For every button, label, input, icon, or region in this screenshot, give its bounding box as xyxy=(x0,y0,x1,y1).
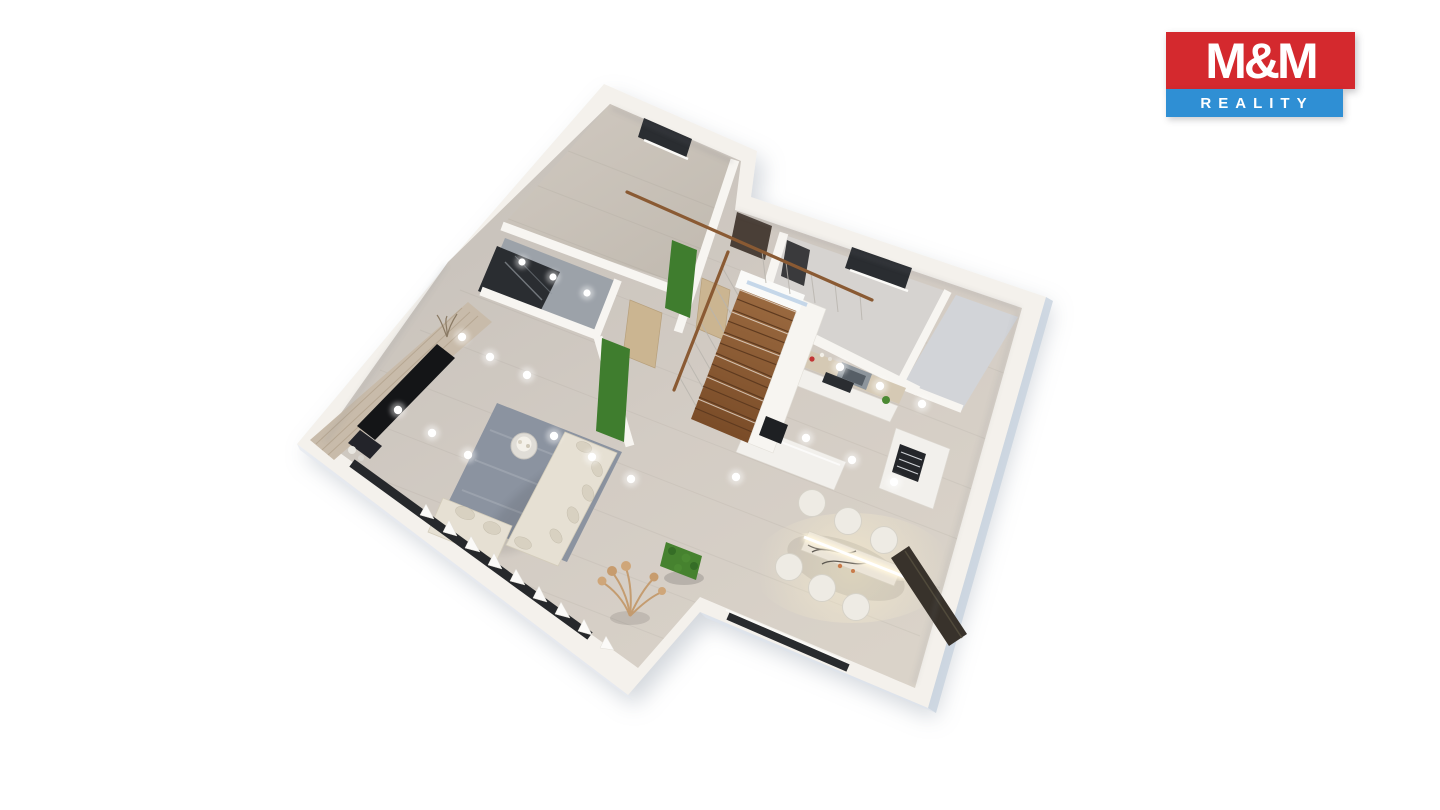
pampas-plume xyxy=(650,573,659,582)
logo-title: M&M xyxy=(1205,32,1315,90)
logo-reality-bar: REALITY xyxy=(1166,89,1343,117)
table-decor xyxy=(838,564,842,568)
kitchen-plant xyxy=(882,396,890,404)
vase xyxy=(358,455,364,461)
red-pot xyxy=(809,356,814,361)
coffee-table-flowers xyxy=(517,437,532,452)
hedge-texture xyxy=(682,554,691,563)
kitchen-item xyxy=(828,357,832,361)
logo-subtitle: REALITY xyxy=(1200,95,1313,112)
pampas-plume xyxy=(621,561,631,571)
hedge-texture xyxy=(674,564,682,572)
logo-mm-block: M&M xyxy=(1166,32,1355,89)
pampas-plume xyxy=(598,577,607,586)
hedge-texture xyxy=(690,562,698,570)
flower-detail xyxy=(518,440,522,444)
floor-plan-render xyxy=(0,0,1440,810)
pampas-plume xyxy=(658,587,666,595)
table-decor xyxy=(851,569,855,573)
vase xyxy=(348,446,356,454)
vertical-garden-panel-b xyxy=(596,338,630,442)
hedge-texture xyxy=(668,547,676,555)
mm-reality-logo: M&M REALITY xyxy=(1166,32,1356,117)
flower-detail xyxy=(526,444,530,448)
pampas-plume xyxy=(607,566,617,576)
kitchen-item xyxy=(820,353,824,357)
page: M&M REALITY xyxy=(0,0,1440,810)
